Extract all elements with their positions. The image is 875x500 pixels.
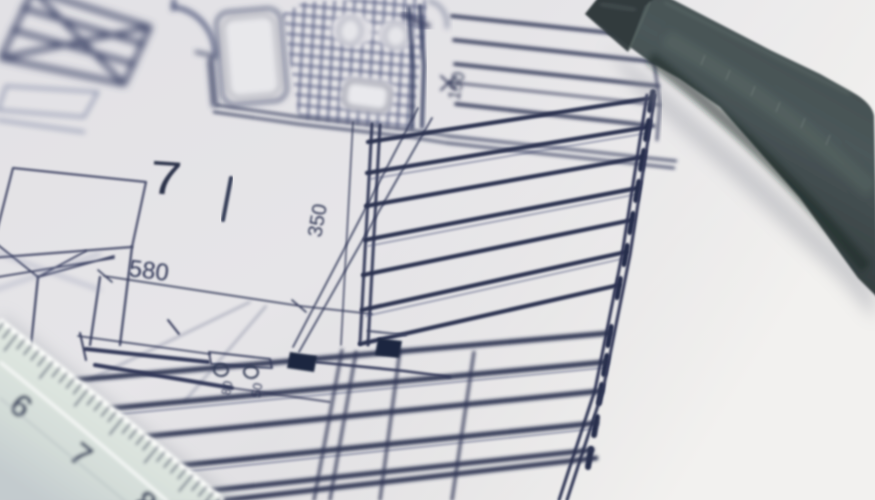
svg-text:80: 80: [218, 380, 235, 397]
svg-text:50: 50: [248, 382, 265, 399]
svg-text:7: 7: [148, 152, 183, 206]
